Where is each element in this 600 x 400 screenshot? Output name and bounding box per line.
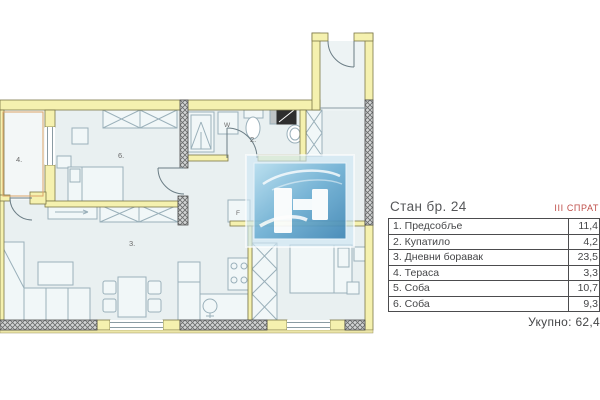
table-row: 2. Купатило 4,2 (389, 235, 599, 251)
fridge-label: F (236, 210, 240, 217)
room-label-bedroom6: 6. (118, 151, 124, 160)
room-area: 11,4 (568, 219, 599, 234)
panel-header: Стан бр. 24 III СПРАТ (390, 199, 599, 214)
apartment-title: Стан бр. 24 (390, 199, 467, 214)
room-label-living: 3. (129, 239, 135, 248)
room-name: 4. Тераса (389, 267, 568, 279)
table-row: 6. Соба 9,3 (389, 297, 599, 312)
room-label-terrace: 4. (16, 155, 22, 164)
table-row: 4. Тераса 3,3 (389, 266, 599, 282)
floor-badge: III СПРАТ (554, 203, 599, 214)
washer-label: W (224, 122, 231, 129)
table-row: 1. Предсобље 11,4 (389, 219, 599, 235)
room-name: 6. Соба (389, 298, 568, 310)
table-row: 3. Дневни боравак 23,5 (389, 250, 599, 266)
room-area: 9,3 (568, 297, 599, 312)
table-row: 5. Соба 10,7 (389, 281, 599, 297)
room-area-table: 1. Предсобље 11,4 2. Купатило 4,2 3. Дне… (388, 218, 600, 312)
total-line: Укупно: 62,4 (388, 315, 600, 329)
room-name: 5. Соба (389, 282, 568, 294)
room-name: 3. Дневни боравак (389, 251, 568, 263)
area-table-panel: Стан бр. 24 III СПРАТ 1. Предсобље 11,4 … (388, 199, 600, 329)
room-area: 3,3 (568, 266, 599, 281)
room-area: 4,2 (568, 235, 599, 250)
room-area: 10,7 (568, 281, 599, 296)
total-value: 62,4 (575, 315, 600, 329)
room-label-bathroom: 2. (250, 135, 256, 144)
room-name: 1. Предсобље (389, 220, 568, 232)
room-name: 2. Купатило (389, 236, 568, 248)
room-area: 23,5 (568, 250, 599, 265)
watermark-logo (246, 155, 354, 247)
total-label: Укупно: (528, 315, 572, 329)
